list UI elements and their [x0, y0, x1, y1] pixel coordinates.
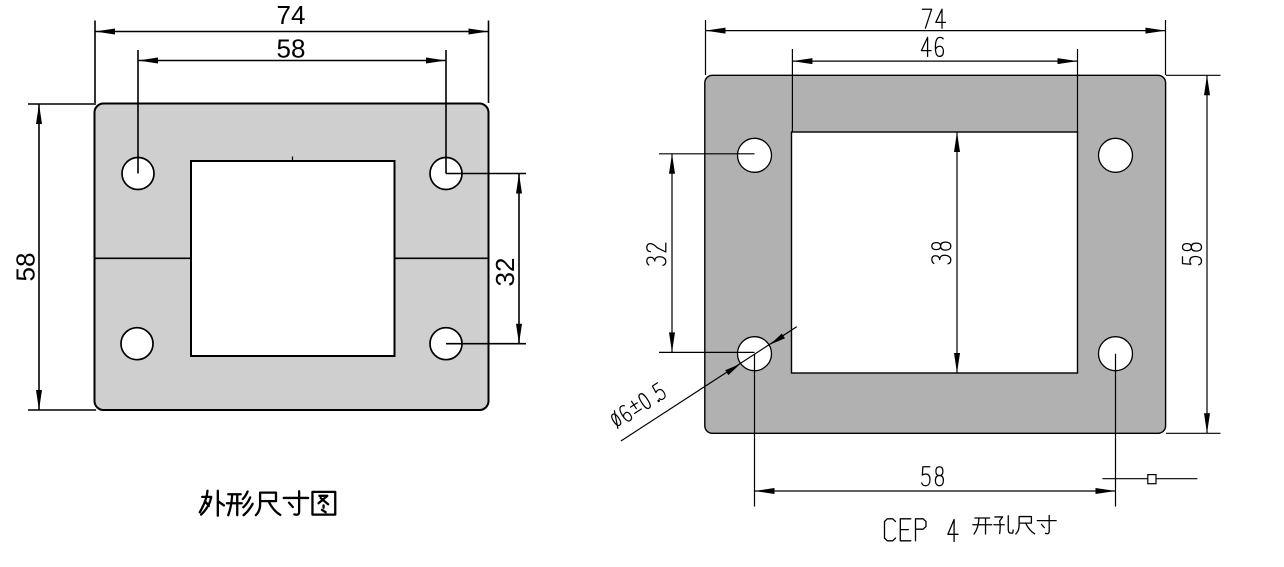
- svg-text:74: 74: [277, 0, 306, 30]
- svg-text:58: 58: [11, 253, 41, 282]
- svg-text:32: 32: [490, 258, 520, 287]
- svg-text:58: 58: [277, 34, 306, 64]
